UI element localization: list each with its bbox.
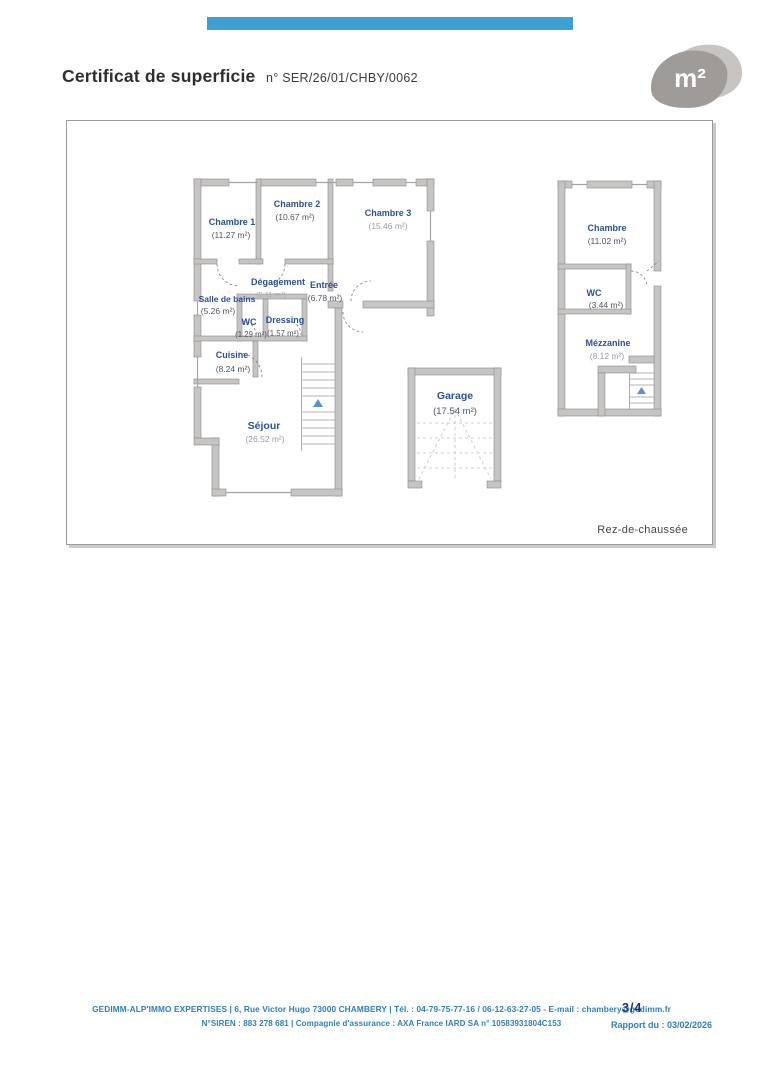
room-area-entree: (6.78 m²) (308, 293, 343, 303)
right-building-walls (558, 181, 661, 416)
room-label-dressing: Dressing (266, 315, 305, 325)
room-label-chambre1: Chambre 1 (209, 217, 256, 227)
title-row: Certificat de superficie n° SER/26/01/CH… (62, 66, 418, 87)
room-area-chambre1: (11.27 m²) (212, 230, 251, 240)
room-label-wc-right: WC (587, 288, 602, 298)
room-label-mezzanine: Mézzanine (585, 338, 630, 348)
stairs-up-arrow-main (313, 399, 323, 407)
page-footer: GEDIMM-ALP'IMMO EXPERTISES | 6, Rue Vict… (0, 1004, 763, 1028)
room-area-mezzanine: (8.12 m²) (590, 351, 625, 361)
room-area-salle-de-bains: (5.26 m²) (201, 306, 236, 316)
room-area-sejour: (26.52 m²) (245, 434, 284, 444)
report-date: Rapport du : 03/02/2026 (611, 1020, 712, 1030)
room-label-salle-de-bains: Salle de bains (199, 294, 256, 304)
floor-plan: Chambre 1 (11.27 m²) Chambre 2 (10.67 m²… (67, 121, 712, 544)
room-label-degagement: Dégagement (251, 277, 305, 287)
room-area-chambre3: (15.46 m²) (368, 221, 407, 231)
room-area-chambre-right: (11.02 m²) (588, 236, 627, 246)
room-area-cuisine: (8.24 m²) (216, 364, 251, 374)
stairs-up-arrow-right (637, 387, 646, 394)
document-page: Certificat de superficie n° SER/26/01/CH… (0, 0, 763, 1080)
room-label-chambre2: Chambre 2 (274, 199, 321, 209)
room-area-dressing: (1.57 m²) (267, 329, 299, 338)
room-area-wc: (1.29 m²) (235, 330, 267, 339)
floor-label: Rez-de-chaussée (597, 524, 688, 536)
room-label-chambre-right: Chambre (587, 223, 626, 233)
top-accent-bar (207, 17, 573, 30)
garage-door (417, 409, 492, 479)
room-label-chambre3: Chambre 3 (365, 208, 412, 218)
page-title: Certificat de superficie (62, 66, 255, 86)
room-label-cuisine: Cuisine (216, 350, 249, 360)
m2-logo: m² (648, 44, 748, 112)
certificate-number: n° SER/26/01/CHBY/0062 (266, 71, 418, 85)
logo-m2-text: m² (660, 58, 720, 98)
room-label-wc: WC (242, 317, 257, 327)
room-label-entree: Entrée (310, 280, 338, 290)
room-area-degagement: (5.11 m²) (256, 290, 286, 299)
room-area-chambre2: (10.67 m²) (275, 212, 314, 222)
room-label-sejour: Séjour (248, 420, 281, 432)
page-number: 3/4 (622, 1001, 642, 1015)
footer-contact-line: GEDIMM-ALP'IMMO EXPERTISES | 6, Rue Vict… (0, 1004, 763, 1014)
floor-plan-frame: Chambre 1 (11.27 m²) Chambre 2 (10.67 m²… (66, 120, 713, 545)
room-area-garage: (17.54 m²) (433, 406, 477, 417)
room-area-wc-right: (3.44 m²) (589, 300, 624, 310)
garage-walls (408, 368, 501, 488)
room-label-garage: Garage (437, 390, 473, 402)
